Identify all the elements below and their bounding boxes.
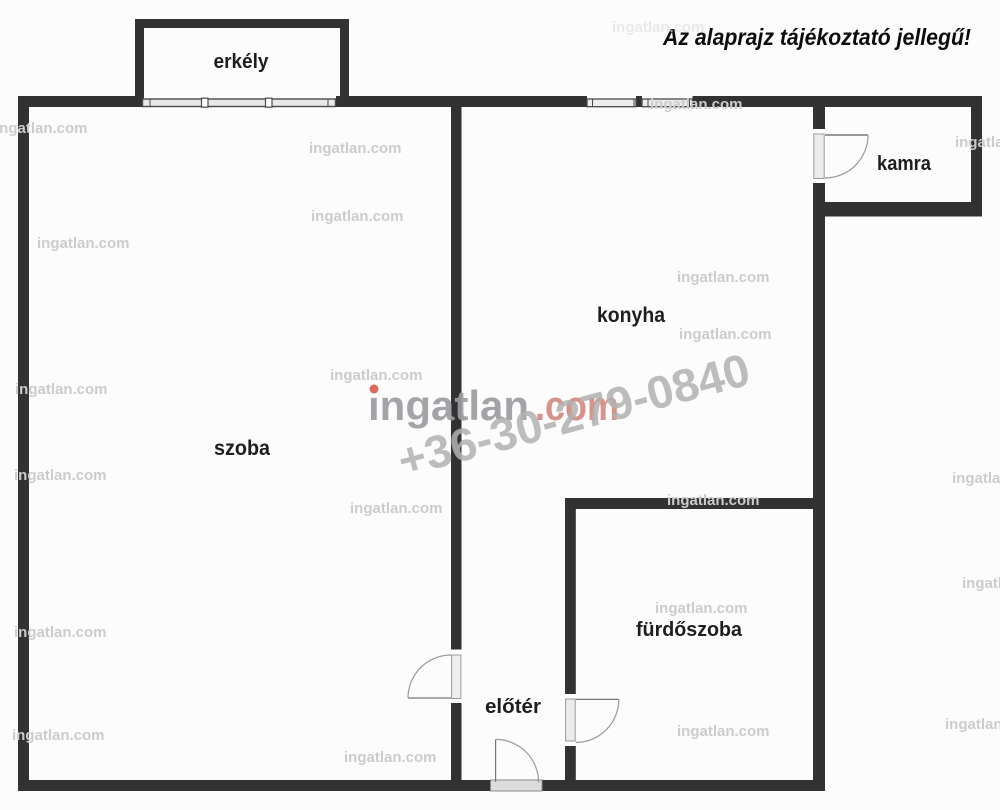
svg-text:Az alaprajz tájékoztató jelleg: Az alaprajz tájékoztató jellegű! — [662, 24, 971, 50]
svg-text:ingatlan.com: ingatlan.com — [12, 727, 105, 744]
svg-text:konyha: konyha — [597, 304, 665, 327]
svg-text:ingatlan.com: ingatlan.com — [311, 208, 404, 225]
svg-text:ingatlan.com: ingatlan.com — [309, 140, 402, 157]
svg-text:ingatlan.com: ingatlan.com — [952, 470, 1000, 487]
svg-text:ingatlan.com: ingatlan.com — [650, 96, 743, 113]
svg-text:ingatlan.com: ingatlan.com — [14, 624, 107, 641]
svg-text:fürdőszoba: fürdőszoba — [636, 618, 743, 641]
svg-text:ingatlan.com: ingatlan.com — [37, 235, 130, 252]
svg-text:ingatlan.com: ingatlan.com — [962, 575, 1000, 592]
svg-text:előtér: előtér — [485, 695, 541, 718]
svg-text:ingatlan.com: ingatlan.com — [945, 716, 1000, 733]
svg-text:ingatlan.com: ingatlan.com — [677, 723, 770, 740]
svg-text:ingatlan.com: ingatlan.com — [655, 600, 748, 617]
svg-text:ingatlan.com: ingatlan.com — [679, 326, 772, 343]
svg-text:ingatlan.com: ingatlan.com — [677, 269, 770, 286]
svg-text:ingatlan.com: ingatlan.com — [15, 381, 108, 398]
svg-text:ingatlan.com: ingatlan.com — [0, 120, 88, 137]
svg-text:ingatlan.com: ingatlan.com — [667, 492, 760, 509]
svg-text:szoba: szoba — [214, 437, 270, 460]
svg-text:erkély: erkély — [214, 50, 270, 73]
svg-text:ingatlan.com: ingatlan.com — [14, 467, 107, 484]
svg-text:ingatlan.com: ingatlan.com — [612, 19, 705, 36]
svg-text:kamra: kamra — [877, 152, 932, 175]
svg-text:ingatlan.com: ingatlan.com — [350, 500, 443, 517]
svg-text:ingatlan.com: ingatlan.com — [344, 749, 437, 766]
svg-text:ingatlan.com: ingatlan.com — [955, 134, 1000, 151]
